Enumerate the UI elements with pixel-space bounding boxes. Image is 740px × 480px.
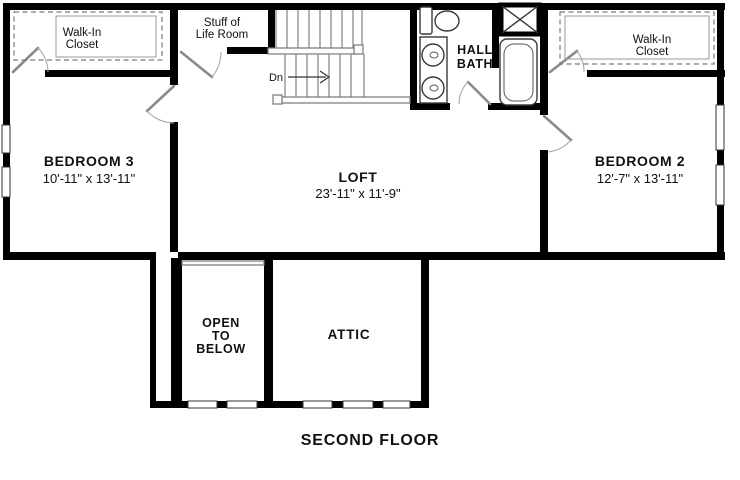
- closet2-label-line1: Walk-In: [633, 34, 672, 46]
- wall-attic-right: [421, 258, 429, 408]
- stair-lower-flight-treads: [285, 54, 364, 97]
- stair-mid-rail: [268, 48, 356, 54]
- bedroom3-name: BEDROOM 3: [44, 153, 134, 169]
- wall-openbelow-attic-divider: [264, 258, 273, 405]
- open-below-label-line1: OPEN: [202, 316, 240, 330]
- bedroom2-dims: 12'-7" x 13'-11": [597, 171, 684, 186]
- wall-right-a: [717, 10, 724, 105]
- wall-lower-bottom-2: [217, 401, 227, 408]
- stair-newel-upper: [354, 45, 363, 54]
- open-below-label-line2: TO: [212, 329, 230, 343]
- wall-bottom-upper-right: [178, 252, 725, 260]
- attic-label: ATTIC: [328, 327, 371, 342]
- stuff-room-label-line1: Stuff of: [204, 17, 241, 29]
- wall-lower-bottom-4: [332, 401, 343, 408]
- window-lower-4: [343, 401, 373, 408]
- wall-left-b: [3, 153, 10, 167]
- open-below-label-line3: BELOW: [196, 342, 246, 356]
- door-stuff-of-life-room: [181, 52, 221, 77]
- floor-plan-page: Dn: [0, 0, 740, 480]
- stair-upper-flight-treads: [276, 10, 362, 48]
- bedroom3-dims: 10'-11" x 13'-11": [43, 171, 136, 186]
- door-bedroom3: [147, 86, 174, 123]
- window-lower-1: [188, 401, 217, 408]
- wall-stairwell-left: [268, 3, 275, 52]
- wall-lower-left-outer: [150, 258, 156, 408]
- wall-lower-bottom-5: [373, 401, 383, 408]
- door-closet2: [550, 51, 584, 72]
- wall-closet1-stuffroom-divider: [170, 3, 178, 85]
- wall-lower-left-inner: [171, 258, 182, 405]
- window-lower-5: [383, 401, 410, 408]
- staircase: Dn: [268, 10, 410, 104]
- floor-plan-drawing: Dn: [0, 0, 740, 480]
- wall-bottom-upper-left: [3, 252, 156, 260]
- wall-left-a: [3, 10, 10, 125]
- stair-bottom-rail: [276, 97, 410, 103]
- closet1-label-line1: Walk-In: [63, 27, 102, 39]
- wall-lower-bottom-1: [150, 401, 188, 408]
- wall-bath-bottom-left: [410, 103, 450, 110]
- window-bedroom3-left-1: [2, 125, 10, 153]
- loft-name: LOFT: [339, 169, 378, 185]
- wall-closet1-bottom: [45, 70, 178, 77]
- window-bedroom2-right-2: [716, 165, 724, 205]
- door-hall-bath: [459, 82, 490, 104]
- stairs-down-label: Dn: [269, 72, 283, 84]
- sink-icon-1: [422, 44, 444, 66]
- open-below-railing: [182, 261, 264, 265]
- wall-bath-left: [410, 3, 417, 110]
- wall-top: [3, 3, 725, 10]
- wall-right-c: [717, 205, 724, 252]
- sink-icon-2: [422, 77, 444, 99]
- bedroom2-name: BEDROOM 2: [595, 153, 685, 169]
- plan-title: SECOND FLOOR: [301, 432, 440, 449]
- wall-bedroom3-right: [170, 122, 178, 252]
- wall-right-b: [717, 150, 724, 165]
- toilet-tank-icon: [420, 7, 432, 34]
- wall-left-c: [3, 197, 10, 252]
- loft-dims: 23'-11" x 11'-9": [315, 186, 401, 201]
- toilet-bowl-icon: [435, 11, 459, 31]
- window-lower-2: [227, 401, 257, 408]
- hall-bath-label-line1: HALL: [457, 43, 493, 57]
- door-bedroom2: [544, 116, 571, 152]
- wall-lower-bottom-6: [410, 401, 429, 408]
- window-bedroom2-right-1: [716, 105, 724, 150]
- wall-lower-bottom-3: [257, 401, 303, 408]
- closet2-label-line2: Closet: [636, 46, 669, 58]
- hall-bath-label-line2: BATH: [457, 57, 493, 71]
- closet1-label-line2: Closet: [66, 39, 99, 51]
- wall-closet2-bottom: [587, 70, 725, 77]
- window-bedroom3-left-2: [2, 167, 10, 197]
- stair-newel-lower: [273, 95, 282, 104]
- wall-bedroom2-left-lower: [540, 150, 548, 252]
- window-lower-3: [303, 401, 332, 408]
- stuff-room-label-line2: Life Room: [196, 29, 248, 41]
